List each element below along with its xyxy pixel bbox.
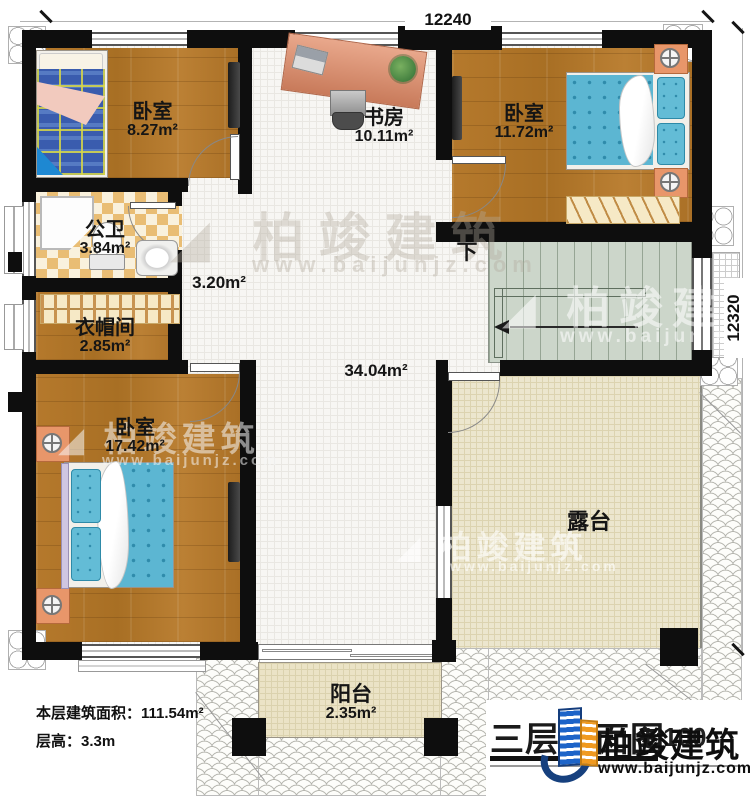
wall [22,642,82,660]
stairs-down-label: 下 [454,242,480,264]
wall [500,360,712,376]
dimension-line-top [20,21,712,22]
wall [436,360,448,376]
window [22,300,36,352]
window [92,32,187,46]
brand-logo-building-orange [580,719,598,766]
room-label-study: 书房 10.11m² [336,108,432,146]
bed-pillow [657,123,685,165]
room-label-balcony: 阳台 2.35m² [318,684,384,723]
roof-tiles-right-strip [702,378,742,702]
floor-height-info: 层高：3.3m [36,730,115,751]
bed-pillow [71,469,101,523]
sliding-door-panel [350,654,436,657]
floor-area-info: 本层建筑面积：111.54m² [36,702,204,723]
door-leaf [190,363,240,372]
bed [36,50,108,178]
sliding-door [258,644,440,660]
plant [390,56,416,82]
wall [36,178,188,192]
room-label-bedroom-main: 卧室 17.42m² [90,418,180,456]
window [502,32,602,46]
storage-bench [566,196,680,224]
bed-pillow [71,527,101,581]
tv [228,482,240,562]
wall [238,48,252,194]
tv [452,76,462,140]
bed-headboard [61,463,69,589]
bed-sheet [619,75,655,167]
wall [22,30,36,202]
wall [436,598,452,644]
brand-logo-building-blue [558,707,582,767]
dimension-top-value: 12240 [405,10,491,30]
terrace-column [660,628,698,666]
window [82,644,200,658]
room-label-cloakroom: 衣帽间 2.85m² [60,318,150,356]
wall [200,642,258,660]
wall [22,276,36,300]
floor-height-value: 3.3m [81,733,115,750]
room-label-bathroom: 公卫 3.84m² [68,220,142,258]
wall [432,640,456,662]
tv [228,62,240,128]
bed [566,72,690,170]
room-label-bedroom-top-left: 卧室 8.27m² [100,102,205,140]
bed [64,462,174,588]
balcony-column [232,718,266,756]
room-label-bedroom-top-right: 卧室 11.72m² [474,104,574,142]
lamp [660,172,680,192]
floor-area-value: 111.54m² [141,705,204,722]
roof-tiles-below-balcony [258,736,442,796]
lamp [42,595,62,615]
wall [187,30,295,48]
window-frame [4,304,24,350]
bed-pillow [657,77,685,119]
floor-plan: ◢ 柏竣建筑 www.baijunjz.com ◢ 柏竣建筑 www.baiju… [0,0,750,798]
wall [22,352,36,660]
sliding-door-panel [262,649,352,652]
bed-sheet [97,461,129,589]
watermark-url: www.baijunjz.com [560,326,750,348]
lamp [660,48,680,68]
window-frame [78,660,206,672]
wall [36,360,188,374]
dimension-right-value: 12320 [724,278,744,358]
balcony-column [424,718,458,756]
wall [36,278,182,292]
window [22,202,36,276]
floor-area-label: 本层建筑面积： [36,705,141,722]
corridor-area-label: 3.20m² [180,274,258,292]
door-leaf [448,372,500,381]
brand-website: www.baijunjz.com [598,760,750,778]
wall [436,48,452,160]
door-leaf [452,156,506,164]
wall-pier [8,252,22,272]
wall [240,360,256,642]
wall-pier [8,392,22,412]
floor-height-label: 层高： [36,733,81,750]
room-label-terrace: 露台 [544,510,634,533]
watermark-url: www.baijunjz.com [252,252,538,278]
watermark-url: www.baijunjz.com [450,558,619,574]
hall-area-label: 34.04m² [328,362,424,380]
